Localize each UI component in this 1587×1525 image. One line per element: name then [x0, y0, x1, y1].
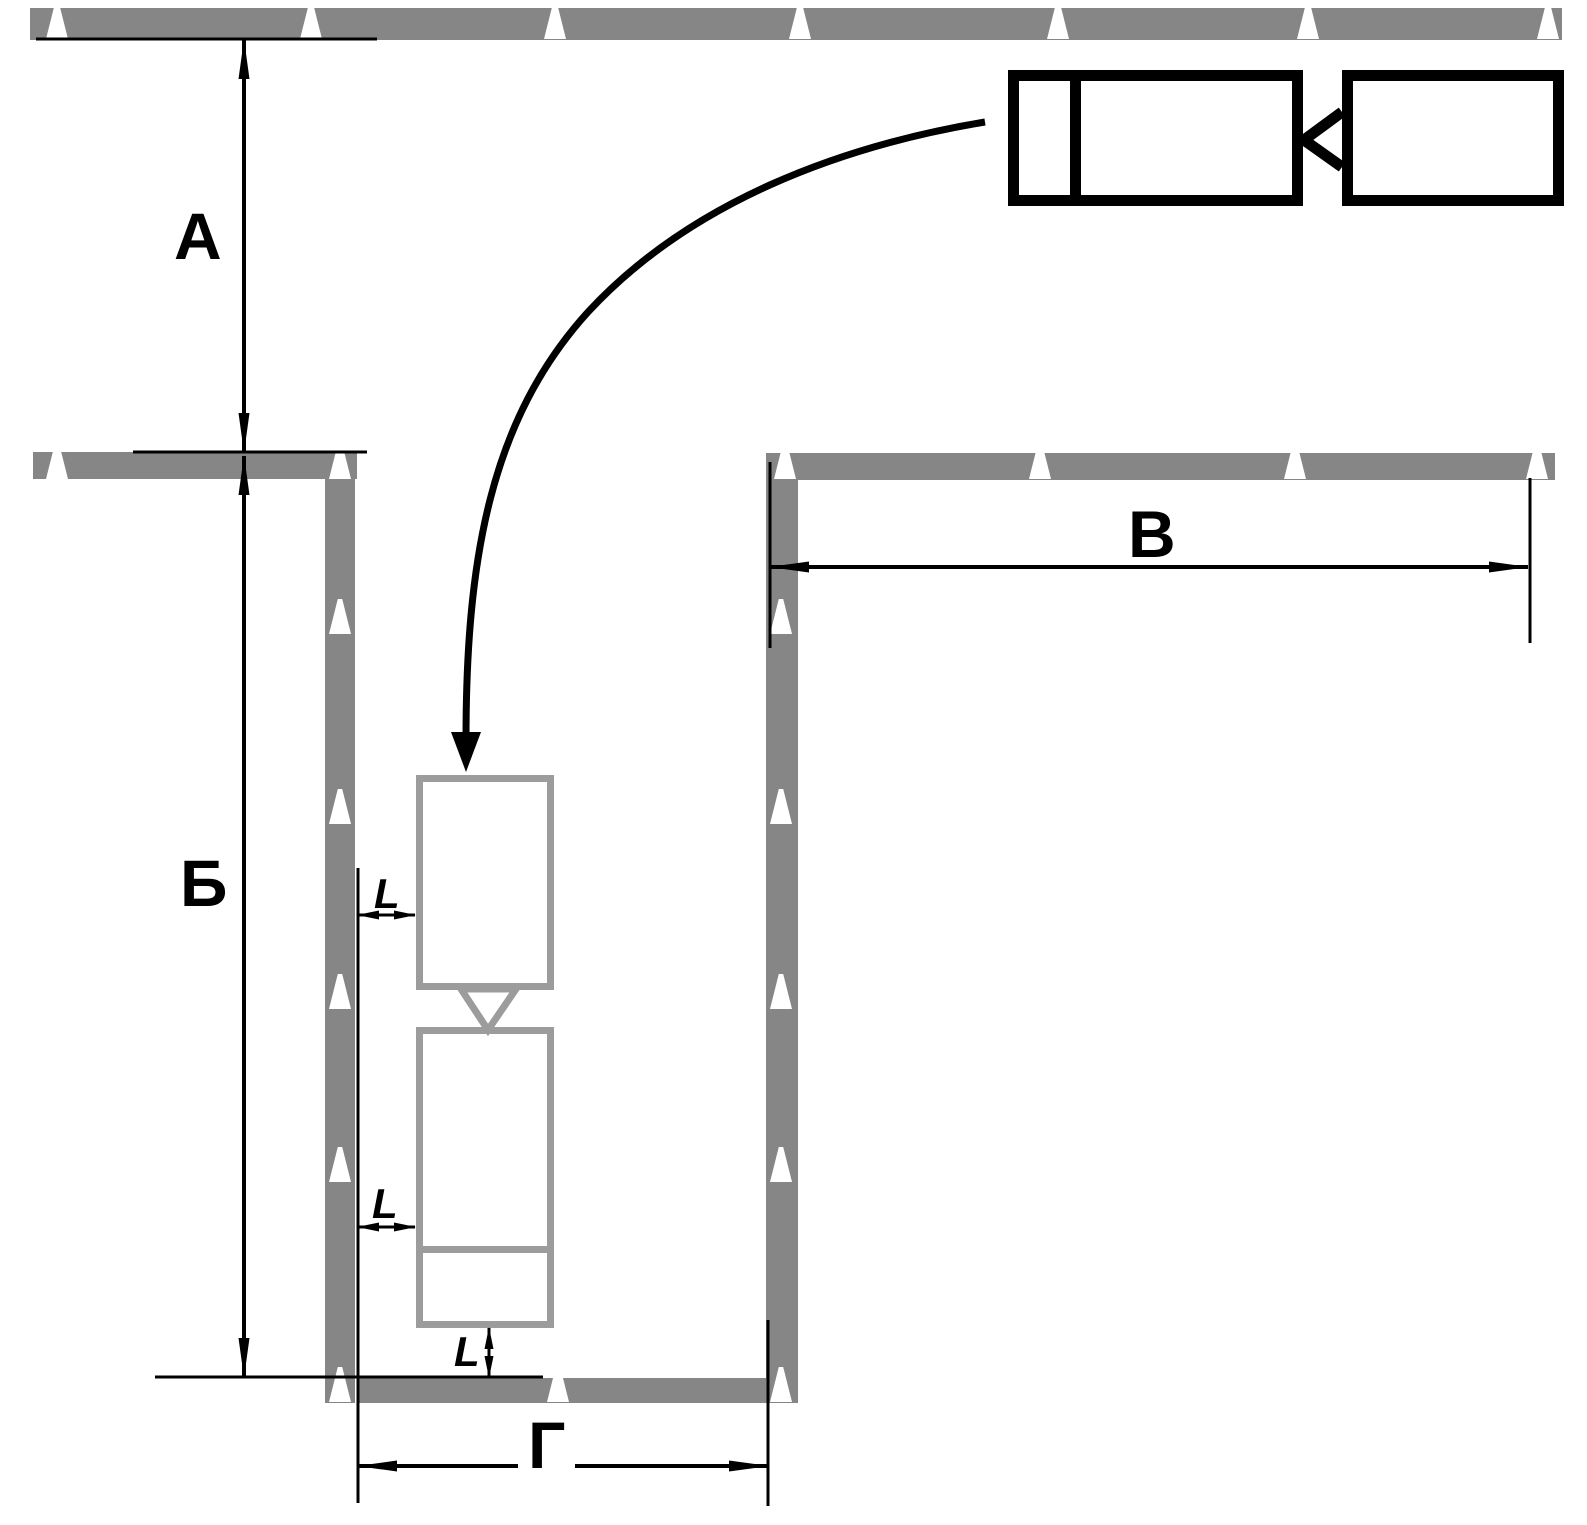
dimension-g-label: Г [518, 1412, 575, 1478]
dimension-b-label: Б [180, 850, 227, 916]
dimension-overlay [0, 0, 1587, 1525]
hitch-coupling-parked-icon [461, 989, 516, 1030]
clearance-l-truck-label: L [372, 1183, 398, 1225]
driving-course-diagram: А Б В Г L L L [0, 0, 1587, 1525]
trajectory-arrowhead-icon [451, 732, 481, 772]
dimension-v-label: В [1128, 501, 1176, 567]
dimension-a-label: А [174, 203, 222, 269]
clearance-l-rear-label: L [454, 1331, 480, 1373]
trajectory-arrow [466, 122, 985, 740]
clearance-l-trailer-label: L [374, 873, 400, 915]
hitch-coupling-start-icon [1304, 112, 1342, 167]
